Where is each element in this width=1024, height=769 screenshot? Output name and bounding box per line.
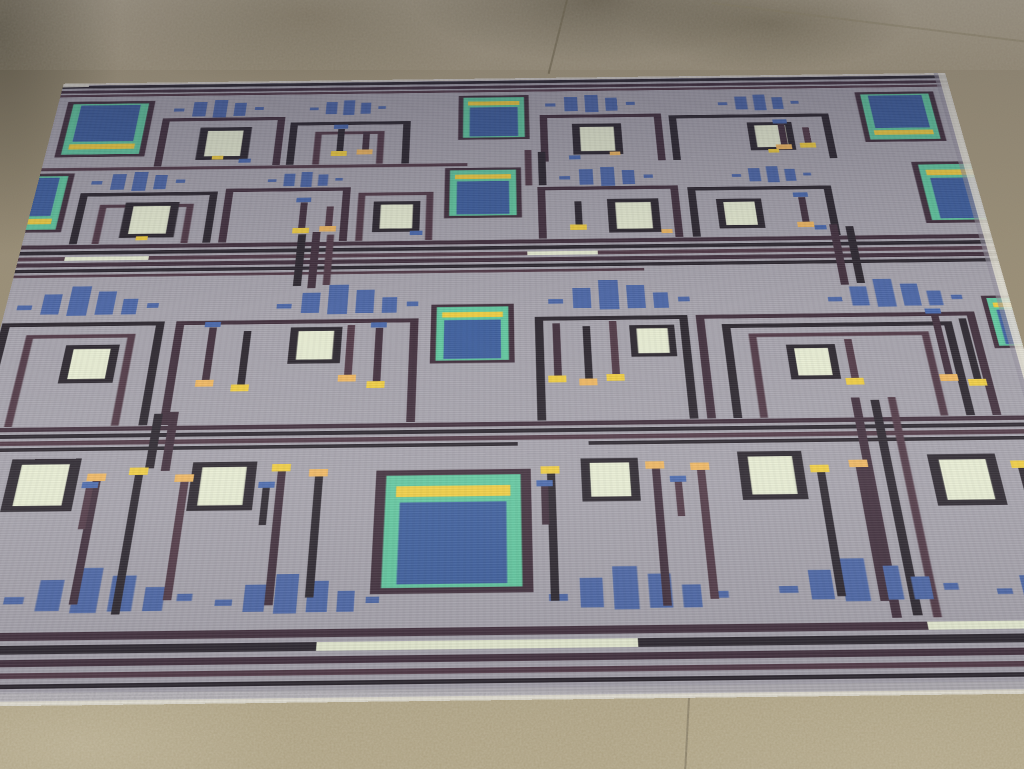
cream-box-motif (287, 327, 342, 364)
photo-scene: A flat-woven wool rug with a circuit-boa… (0, 0, 1024, 769)
cream-box-motif (186, 462, 257, 512)
cream-box-motif (786, 344, 841, 379)
circuit-chip-motif (54, 101, 155, 158)
cream-box-motif (195, 127, 252, 160)
circuit-chip-motif (458, 95, 530, 140)
circuit-chip-motif (854, 91, 946, 142)
cream-box-motif (580, 458, 640, 502)
cream-box-motif (572, 123, 624, 154)
cream-box-motif (58, 345, 120, 384)
circuit-chip-motif (444, 167, 522, 218)
circuit-chip-motif (370, 469, 534, 595)
cream-box-motif (716, 198, 766, 228)
circuit-pattern-rug (0, 73, 1024, 707)
cream-box-motif (629, 325, 677, 357)
cream-box-motif (372, 201, 421, 232)
cream-box-motif (0, 459, 82, 513)
trace-line (542, 152, 543, 185)
circuit-chip-motif (430, 304, 515, 364)
cream-box-motif (119, 202, 180, 238)
rug-pattern (0, 73, 1024, 707)
cream-box-motif (737, 451, 809, 500)
cream-box-motif (607, 198, 662, 232)
trace-line (528, 150, 529, 185)
cream-box-motif (927, 454, 1008, 506)
